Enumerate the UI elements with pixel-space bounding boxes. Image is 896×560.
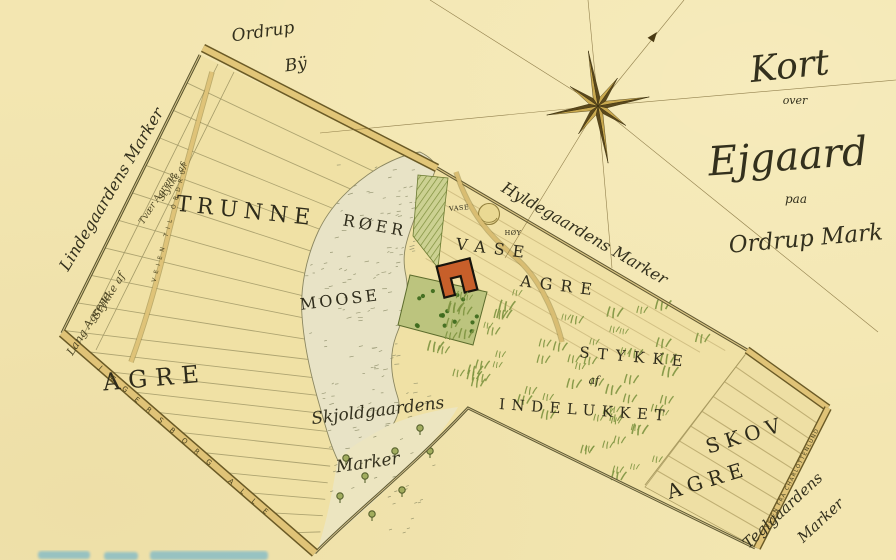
village-label-line1: Ordrup	[230, 18, 295, 47]
title-kort: Kort	[747, 42, 832, 91]
faded-blue-marking	[38, 551, 268, 560]
title-estate: Ejgaard	[706, 128, 869, 185]
map-canvas: Kort over Ejgaard paa Ordrup Mark Ordrup…	[0, 0, 896, 560]
mound-label-line2: HØY	[505, 229, 522, 237]
village-label-line2: Bÿ	[283, 54, 309, 77]
map-sheet: Kort over Ejgaard paa Ordrup Mark Ordrup…	[0, 0, 896, 560]
title-over: over	[783, 94, 808, 107]
title-place: Ordrup Mark	[728, 219, 884, 258]
title-paa: paa	[785, 192, 807, 206]
